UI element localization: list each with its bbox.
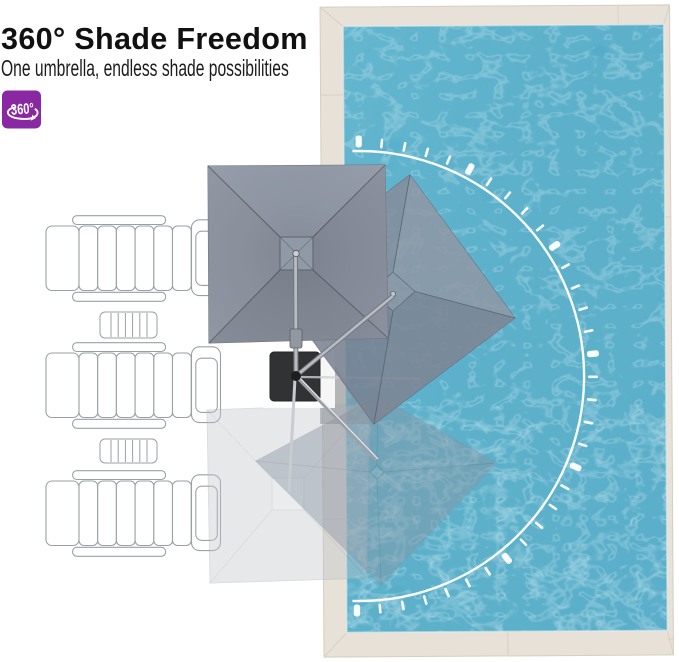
svg-text:360°: 360° bbox=[10, 100, 34, 119]
